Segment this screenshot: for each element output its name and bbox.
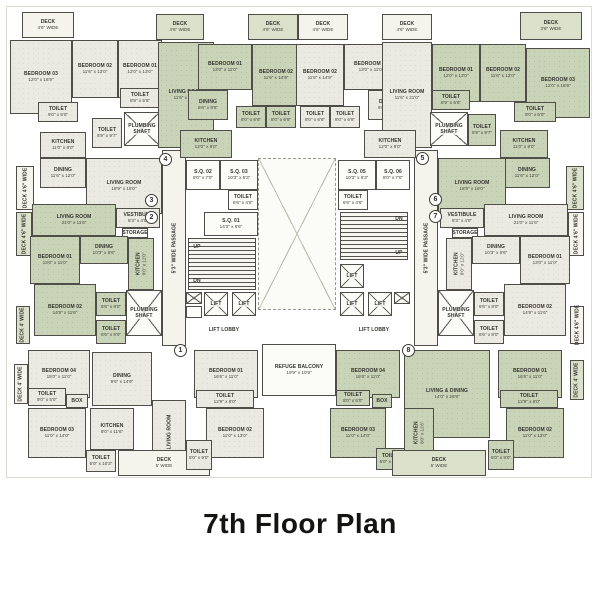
unit-number-marker-6: 6 bbox=[429, 193, 442, 206]
room-label: TOILET5'9" x 9'7" bbox=[97, 127, 117, 139]
room-label: BEDROOM 0211'6" x 14'9" bbox=[303, 69, 337, 81]
room-kitchen: KITCHEN8'0" x 12'0" bbox=[446, 238, 472, 290]
unit-number-marker-4: 4 bbox=[159, 153, 172, 166]
room-label: BEDROOM 0311'0" x 14'0" bbox=[341, 427, 375, 439]
room-up: UP bbox=[190, 242, 204, 252]
unit-number-marker-7: 7 bbox=[429, 210, 442, 223]
room-label: TOILET8'9" x 5'6" bbox=[130, 92, 150, 104]
room-deck: DECK4'6" WIDE bbox=[156, 14, 204, 40]
room-area bbox=[186, 292, 202, 304]
room-label: BEDROOM 0416'6" x 11'0" bbox=[351, 368, 385, 380]
room-label: UP bbox=[395, 250, 402, 256]
room-label: KITCHEN8'0" x 12'0" bbox=[135, 253, 147, 276]
room-kitchen: KITCHEN11'0" x 8'0" bbox=[40, 132, 86, 158]
room-refuge-balcony: REFUGE BALCONY19'9" x 10'9" bbox=[262, 344, 336, 396]
room-label: DECK4'6" WIDE bbox=[263, 21, 284, 33]
room-label: TOILET6'6" x 4'6" bbox=[233, 194, 253, 206]
unit-number-marker-8: 8 bbox=[402, 344, 415, 357]
room-label: BEDROOM 0113'0" x 11'0" bbox=[38, 254, 72, 266]
room-kitchen: KITCHEN8'0" x 11'6" bbox=[90, 408, 134, 450]
room-deck: DECK4'6" WIDE bbox=[298, 14, 348, 40]
room-label: BEDROOM 0211'0" x 13'0" bbox=[518, 427, 552, 439]
room-kitchen: KITCHEN12'0" x 8'0" bbox=[364, 130, 416, 158]
room-label: BEDROOM 0312'0" x 16'9" bbox=[24, 71, 58, 83]
room-label: LIVING ROOM21'0" x 11'6" bbox=[57, 214, 92, 226]
room-deck: DECK5' WIDE bbox=[392, 450, 486, 476]
room-toilet: TOILET8'9" x 5'6" bbox=[120, 88, 160, 108]
room-label: DECK3'6" WIDE bbox=[541, 20, 562, 32]
room-bedroom-02: BEDROOM 0211'6" x 14'9" bbox=[252, 44, 300, 106]
room-deck-4-6-wide: DECK 4'6" WIDE bbox=[568, 212, 584, 256]
room-label: BEDROOM 0113'0" x 11'0" bbox=[528, 254, 562, 266]
room-label: LIFT bbox=[346, 273, 359, 279]
room-label: TOILET5'0" x 9'0" bbox=[491, 449, 511, 461]
room-kitchen: KITCHEN11'0" x 8'0" bbox=[500, 130, 548, 158]
room-bedroom-01: BEDROOM 0113'0" x 11'0" bbox=[198, 44, 252, 90]
room-bedroom-02: BEDROOM 0214'9" x 11'6" bbox=[34, 284, 96, 336]
room-label: LIVING ROOM11'6" x 21'0" bbox=[390, 89, 425, 101]
room-label: S.Q. 068'0" x 7'0" bbox=[383, 169, 403, 181]
room-vestibule: VESTIBULE8'3" x 4'0" bbox=[440, 208, 484, 228]
room-label: TOILET5'0" x 10'3" bbox=[90, 455, 113, 467]
room-label: TOILET8'0" x 6'6" bbox=[305, 111, 325, 123]
room-kitchen: KITCHEN12'0" x 8'0" bbox=[180, 130, 232, 158]
room-bedroom-02: BEDROOM 0211'6" x 14'9" bbox=[296, 44, 344, 106]
room-label: DECK5' WIDE bbox=[156, 457, 173, 469]
room-label: DECK5' WIDE bbox=[431, 457, 448, 469]
room-toilet: TOILET6'6" x 4'6" bbox=[338, 190, 368, 210]
room-toilet: TOILET9'0" x 5'0" bbox=[38, 102, 78, 122]
room-toilet: TOILET8'0" x 6'6" bbox=[300, 106, 330, 128]
room-lift: LIFT bbox=[368, 292, 392, 316]
unit-number-marker-3: 3 bbox=[145, 194, 158, 207]
room-label: DN bbox=[193, 278, 200, 284]
room-label: TOILET8'0" x 5'0" bbox=[343, 392, 363, 404]
room-deck: DECK4'6" WIDE bbox=[382, 14, 432, 40]
room-bedroom-01: BEDROOM 0113'0" x 11'0" bbox=[30, 236, 80, 284]
room-label: BEDROOM 0214'9" x 11'6" bbox=[518, 304, 552, 316]
room-label: DINING11'6" x 12'0" bbox=[51, 167, 76, 179]
room-kitchen: KITCHEN8'0" x 12'0" bbox=[128, 238, 154, 290]
room-5-3-wide-passage: 5'3" WIDE PASSAGE bbox=[162, 150, 186, 346]
room-label: LIFT bbox=[210, 301, 223, 307]
room-lift: LIFT bbox=[204, 292, 228, 316]
room-bedroom-01: BEDROOM 0113'0" x 11'0" bbox=[520, 236, 570, 284]
room-deck: DECK4'6" WIDE bbox=[22, 12, 74, 38]
room-label: TOILET9'0" x 5'0" bbox=[525, 106, 545, 118]
room-toilet: TOILET12'9" x 6'0" bbox=[500, 390, 558, 408]
room-label: BEDROOM 0112'0" x 13'0" bbox=[439, 67, 473, 79]
room-toilet: TOILET5'0" x 10'3" bbox=[86, 450, 116, 472]
room-toilet: TOILET6'6" x 8'0" bbox=[96, 292, 126, 316]
room-label: DECK 4'6" WIDE bbox=[572, 168, 578, 209]
room-label: TOILET9'0" x 5'0" bbox=[48, 106, 68, 118]
unit-number-marker-2: 2 bbox=[145, 211, 158, 224]
room-label: TOILET12'9" x 6'0" bbox=[214, 393, 237, 405]
room-label: BEDROOM 0415'0" x 11'0" bbox=[42, 368, 76, 380]
room-deck-4-wide: DECK 4' WIDE bbox=[16, 306, 30, 344]
room-dn: DN bbox=[190, 276, 204, 286]
page-title: 7th Floor Plan bbox=[0, 508, 600, 540]
room-up: UP bbox=[392, 248, 406, 258]
room-toilet: TOILET6'6" x 8'0" bbox=[96, 320, 126, 344]
room-toilet: TOILET9'0" x 5'0" bbox=[28, 388, 66, 406]
room-lift-lobby: LIFT LOBBY bbox=[186, 318, 262, 342]
room-dining: DINING9'6" x 14'9" bbox=[92, 352, 152, 406]
room-area bbox=[394, 292, 410, 304]
room-deck-4-wide: DECK 4' WIDE bbox=[570, 360, 584, 400]
room-area bbox=[258, 158, 336, 310]
room-label: TOILET6'6" x 8'0" bbox=[479, 298, 499, 310]
room-bedroom-03: BEDROOM 0311'0" x 14'0" bbox=[28, 408, 86, 458]
room-toilet: TOILET8'9" x 5'6" bbox=[432, 90, 470, 110]
room-toilet: TOILET8'0" x 6'6" bbox=[236, 106, 266, 128]
room-label: DECK 4'6" WIDE bbox=[573, 214, 579, 255]
room-label: LIFT bbox=[238, 301, 251, 307]
room-label: TOILET8'9" x 5'6" bbox=[441, 94, 461, 106]
room-label: KITCHEN12'0" x 8'0" bbox=[195, 138, 218, 150]
room-toilet: TOILET5'0" x 9'0" bbox=[488, 440, 514, 470]
room-label: TOILET6'6" x 4'6" bbox=[343, 194, 363, 206]
room-box: BOX bbox=[66, 394, 88, 408]
room-label: REFUGE BALCONY19'9" x 10'9" bbox=[275, 364, 323, 376]
unit-number-marker-5: 5 bbox=[416, 152, 429, 165]
room-label: DECK 4' WIDE bbox=[574, 362, 580, 397]
room-toilet: TOILET8'0" x 6'6" bbox=[266, 106, 296, 128]
room-bedroom-02: BEDROOM 0211'0" x 13'0" bbox=[206, 408, 264, 458]
room-plumbing-shaft: PLUMBING SHAFT bbox=[126, 290, 162, 336]
room-label: BEDROOM 0113'0" x 11'0" bbox=[208, 61, 242, 73]
room-label: BEDROOM 0211'0" x 13'0" bbox=[218, 427, 252, 439]
room-label: KITCHEN8'0" x 12'0" bbox=[453, 253, 465, 276]
room-label: BOX bbox=[71, 398, 82, 404]
room-label: PLUMBING SHAFT bbox=[439, 307, 473, 319]
room-label: TOILET6'6" x 8'0" bbox=[101, 326, 121, 338]
room-label: DECK4'6" WIDE bbox=[397, 21, 418, 33]
room-label: TOILET5'9" x 9'7" bbox=[472, 124, 492, 136]
room-label: DINING10'3" x 6'6" bbox=[485, 244, 508, 256]
room-label: S.Q. 0114'3" x 6'6" bbox=[220, 218, 243, 230]
room-label: KITCHEN8'0" x 11'6" bbox=[413, 422, 425, 445]
room-label: DINING11'6" x 12'0" bbox=[515, 167, 540, 179]
room-lift-lobby: LIFT LOBBY bbox=[336, 318, 412, 342]
room-area bbox=[186, 306, 202, 318]
room-label: TOILET6'6" x 8'0" bbox=[479, 326, 499, 338]
room-dining: DINING11'6" x 12'0" bbox=[40, 158, 86, 188]
room-label: TOILET8'0" x 6'6" bbox=[335, 111, 355, 123]
room-label: DN bbox=[395, 216, 402, 222]
room-label: LIVING ROOM18'9" x 16'0" bbox=[107, 180, 142, 192]
room-toilet: TOILET5'0" x 9'0" bbox=[186, 440, 212, 470]
room-label: LIVING ROOM bbox=[166, 415, 172, 450]
room-label: DECK 4'6" WIDE bbox=[22, 168, 28, 209]
room-lift: LIFT bbox=[340, 292, 364, 316]
room-label: TOILET9'0" x 5'0" bbox=[37, 391, 57, 403]
room-label: LIFT LOBBY bbox=[359, 327, 389, 333]
room-label: KITCHEN11'0" x 8'0" bbox=[52, 139, 75, 151]
room-plumbing-shaft: PLUMBING SHAFT bbox=[430, 112, 468, 146]
room-toilet: TOILET6'6" x 8'0" bbox=[474, 320, 504, 344]
room-label: DECK4'6" WIDE bbox=[170, 21, 191, 33]
room-deck-4-6-wide: DECK 4'6" WIDE bbox=[566, 166, 584, 210]
room-label: BEDROOM 0214'9" x 11'6" bbox=[48, 304, 82, 316]
room-label: TOILET8'0" x 6'6" bbox=[241, 111, 261, 123]
room-box: BOX bbox=[372, 394, 392, 408]
room-label: BEDROOM 0211'6" x 13'0" bbox=[78, 63, 112, 75]
room-label: LIVING ROOM18'9" x 16'0" bbox=[455, 180, 490, 192]
room-lift: LIFT bbox=[232, 292, 256, 316]
unit-number-marker-1: 1 bbox=[174, 344, 187, 357]
room-label: BEDROOM 0312'0" x 16'9" bbox=[541, 77, 575, 89]
room-dining: DINING10'3" x 6'6" bbox=[80, 236, 128, 264]
room-dining: DINING6'6" x 9'6" bbox=[188, 90, 228, 120]
room-label: TOILET8'0" x 6'6" bbox=[271, 111, 291, 123]
room-label: BEDROOM 0116'6" x 11'0" bbox=[209, 368, 243, 380]
room-bedroom-02: BEDROOM 0211'6" x 13'0" bbox=[480, 44, 526, 102]
room-label: DINING9'6" x 14'9" bbox=[111, 373, 134, 385]
room-s-q-03: S.Q. 0310'3" x 6'3" bbox=[220, 160, 258, 190]
room-living-room: LIVING ROOM21'0" x 11'6" bbox=[484, 204, 568, 236]
room-toilet: TOILET6'6" x 4'6" bbox=[228, 190, 258, 210]
room-label: BEDROOM 0311'0" x 14'0" bbox=[40, 427, 74, 439]
room-dining: DINING11'6" x 12'0" bbox=[504, 158, 550, 188]
room-label: LIFT LOBBY bbox=[209, 327, 239, 333]
room-toilet: TOILET9'0" x 5'0" bbox=[514, 102, 556, 122]
room-s-q-02: S.Q. 028'0" x 7'0" bbox=[186, 160, 220, 190]
room-5-3-wide-passage: 5'3" WIDE PASSAGE bbox=[414, 150, 438, 346]
room-living-room: LIVING ROOM21'0" x 11'6" bbox=[32, 204, 116, 236]
room-bedroom-02: BEDROOM 0211'0" x 13'0" bbox=[506, 408, 564, 458]
room-deck: DECK4'6" WIDE bbox=[248, 14, 298, 40]
room-label: LIFT bbox=[374, 301, 387, 307]
room-label: TOILET5'0" x 9'0" bbox=[189, 449, 209, 461]
room-label: BEDROOM 0211'6" x 13'0" bbox=[486, 67, 520, 79]
room-label: S.Q. 028'0" x 7'0" bbox=[193, 169, 213, 181]
room-toilet: TOILET8'0" x 5'0" bbox=[336, 390, 370, 406]
room-toilet: TOILET6'6" x 8'0" bbox=[474, 292, 504, 316]
room-label: DECK4'6" WIDE bbox=[38, 19, 59, 31]
room-label: DECK 4'6" WIDE bbox=[21, 214, 27, 255]
room-label: TOILET12'9" x 6'0" bbox=[518, 393, 541, 405]
room-label: DINING6'6" x 9'6" bbox=[198, 99, 218, 111]
room-s-q-05: S.Q. 0510'3" x 6'3" bbox=[338, 160, 376, 190]
room-label: 5'3" WIDE PASSAGE bbox=[171, 223, 177, 274]
room-dining: DINING10'3" x 6'6" bbox=[472, 236, 520, 264]
room-label: DECK 4' WIDE bbox=[20, 307, 26, 342]
room-label: UP bbox=[193, 244, 200, 250]
room-label: PLUMBING SHAFT bbox=[127, 307, 161, 319]
room-label: PLUMBING SHAFT bbox=[431, 123, 467, 135]
room-lift: LIFT bbox=[340, 264, 364, 288]
room-label: LIVING ROOM21'0" x 11'6" bbox=[509, 214, 544, 226]
room-dn: DN bbox=[392, 214, 406, 224]
room-deck-4-6-wide: DECK 4'6" WIDE bbox=[570, 306, 584, 344]
floor-plan: 5'3" WIDE PASSAGE5'3" WIDE PASSAGEDECK4'… bbox=[0, 0, 600, 600]
room-bedroom-02: BEDROOM 0211'6" x 13'0" bbox=[72, 40, 118, 98]
room-label: LIFT bbox=[346, 301, 359, 307]
room-toilet: TOILET8'0" x 6'6" bbox=[330, 106, 360, 128]
room-plumbing-shaft: PLUMBING SHAFT bbox=[124, 112, 160, 146]
room-label: PLUMBING SHAFT bbox=[125, 123, 159, 135]
room-label: DECK 4' WIDE bbox=[18, 366, 24, 401]
room-label: KITCHEN8'0" x 11'6" bbox=[101, 423, 124, 435]
room-s-q-06: S.Q. 068'0" x 7'0" bbox=[376, 160, 410, 190]
room-label: KITCHEN12'0" x 8'0" bbox=[379, 138, 402, 150]
room-plumbing-shaft: PLUMBING SHAFT bbox=[438, 290, 474, 336]
room-bedroom-02: BEDROOM 0214'9" x 11'6" bbox=[504, 284, 566, 336]
room-label: 5'3" WIDE PASSAGE bbox=[423, 223, 429, 274]
room-label: BOX bbox=[376, 398, 387, 404]
room-toilet: TOILET5'9" x 9'7" bbox=[468, 114, 496, 146]
room-label: DINING10'3" x 6'6" bbox=[93, 244, 116, 256]
room-label: BEDROOM 0112'0" x 13'0" bbox=[123, 63, 157, 75]
room-label: TOILET6'6" x 8'0" bbox=[101, 298, 121, 310]
room-label: BEDROOM 0116'6" x 11'0" bbox=[513, 368, 547, 380]
room-label: S.Q. 0510'3" x 6'3" bbox=[346, 169, 369, 181]
room-label: VESTIBULE8'3" x 4'0" bbox=[448, 212, 477, 224]
room-deck: DECK3'6" WIDE bbox=[520, 12, 582, 40]
room-label: KITCHEN11'0" x 8'0" bbox=[513, 138, 536, 150]
room-label: BEDROOM 0211'6" x 14'9" bbox=[259, 69, 293, 81]
room-toilet: TOILET12'9" x 6'0" bbox=[196, 390, 254, 408]
room-label: DECK4'6" WIDE bbox=[313, 21, 334, 33]
room-s-q-01: S.Q. 0114'3" x 6'6" bbox=[204, 212, 258, 236]
room-label: LIVING & DINING14'0" x 26'9" bbox=[426, 388, 468, 400]
room-toilet: TOILET5'9" x 9'7" bbox=[92, 118, 122, 148]
room-label: DECK 4'6" WIDE bbox=[574, 305, 580, 346]
room-label: S.Q. 0310'3" x 6'3" bbox=[228, 169, 251, 181]
room-deck-4-wide: DECK 4' WIDE bbox=[14, 364, 28, 404]
